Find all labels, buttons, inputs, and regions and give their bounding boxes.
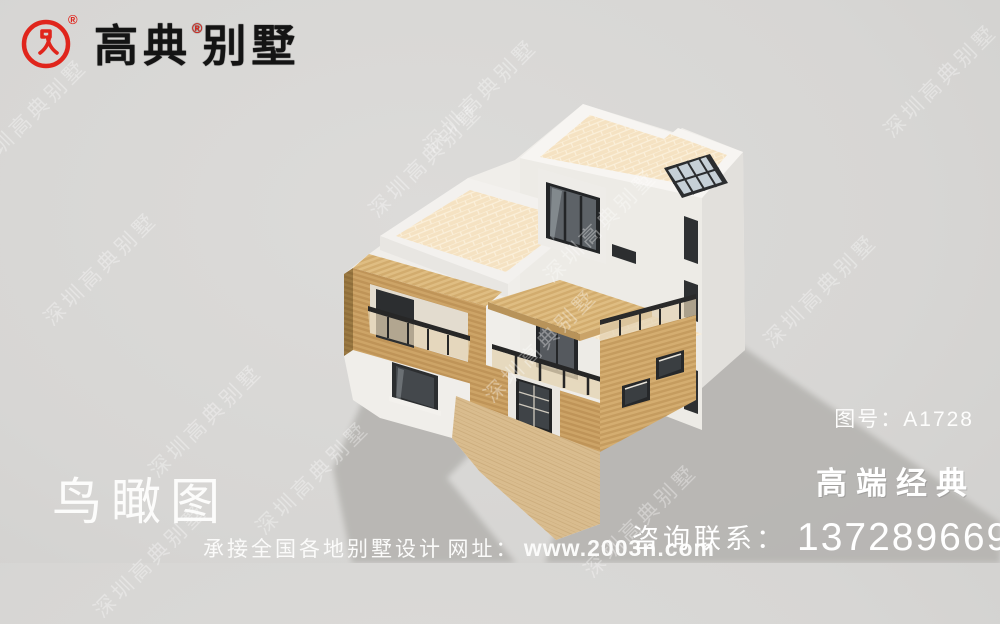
- tagline: 高端经典: [816, 458, 976, 503]
- footer-contact: 咨询联系： 13728966966: [632, 516, 1000, 560]
- svg-text:®: ®: [68, 12, 78, 27]
- view-label: 鸟瞰图: [52, 462, 229, 534]
- brand-name: 高典®别墅: [94, 15, 300, 69]
- service-text: 承接全国各地别墅设计: [203, 537, 443, 561]
- contact-phone: 13728966966: [797, 516, 1000, 560]
- poster-canvas: { "logo": { "brand_left": "高典", "brand_r…: [0, 0, 1000, 563]
- red-seal-circle-icon: ®: [16, 8, 84, 76]
- registered-mark: ®: [192, 20, 202, 36]
- drawing-number: 图号：A1728: [834, 403, 974, 433]
- contact-label: 咨询联系：: [632, 517, 787, 560]
- website-label: 网址：: [447, 537, 519, 561]
- brand-logo: ® 高典®别墅: [16, 8, 300, 76]
